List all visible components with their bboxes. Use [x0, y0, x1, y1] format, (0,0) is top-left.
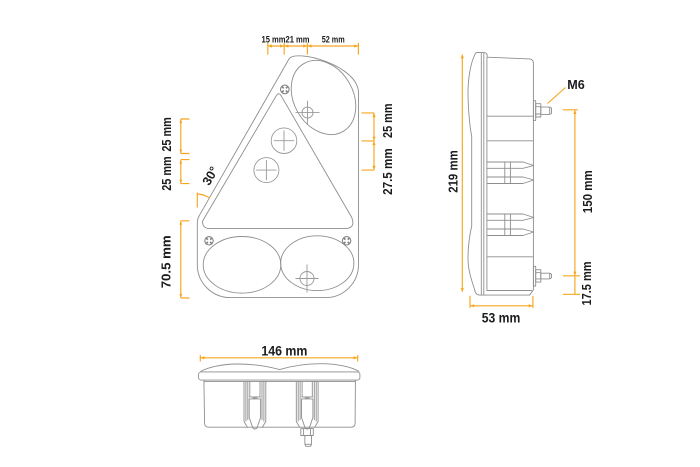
svg-text:219 mm: 219 mm	[447, 150, 461, 193]
svg-text:146 mm: 146 mm	[261, 344, 307, 359]
svg-text:52 mm: 52 mm	[322, 33, 345, 44]
svg-text:25 mm: 25 mm	[160, 117, 174, 152]
svg-text:53 mm: 53 mm	[482, 311, 521, 326]
svg-text:70.5 mm: 70.5 mm	[159, 235, 173, 288]
svg-text:25 mm: 25 mm	[381, 103, 395, 138]
svg-text:25 mm: 25 mm	[160, 156, 174, 191]
svg-text:27.5 mm: 27.5 mm	[381, 148, 395, 195]
svg-text:30°: 30°	[200, 164, 222, 187]
svg-text:17.5 mm: 17.5 mm	[580, 262, 594, 306]
svg-text:150 mm: 150 mm	[581, 170, 595, 213]
svg-text:M6: M6	[567, 78, 585, 92]
svg-text:15 mm: 15 mm	[262, 33, 286, 44]
svg-text:21 mm: 21 mm	[286, 33, 310, 44]
